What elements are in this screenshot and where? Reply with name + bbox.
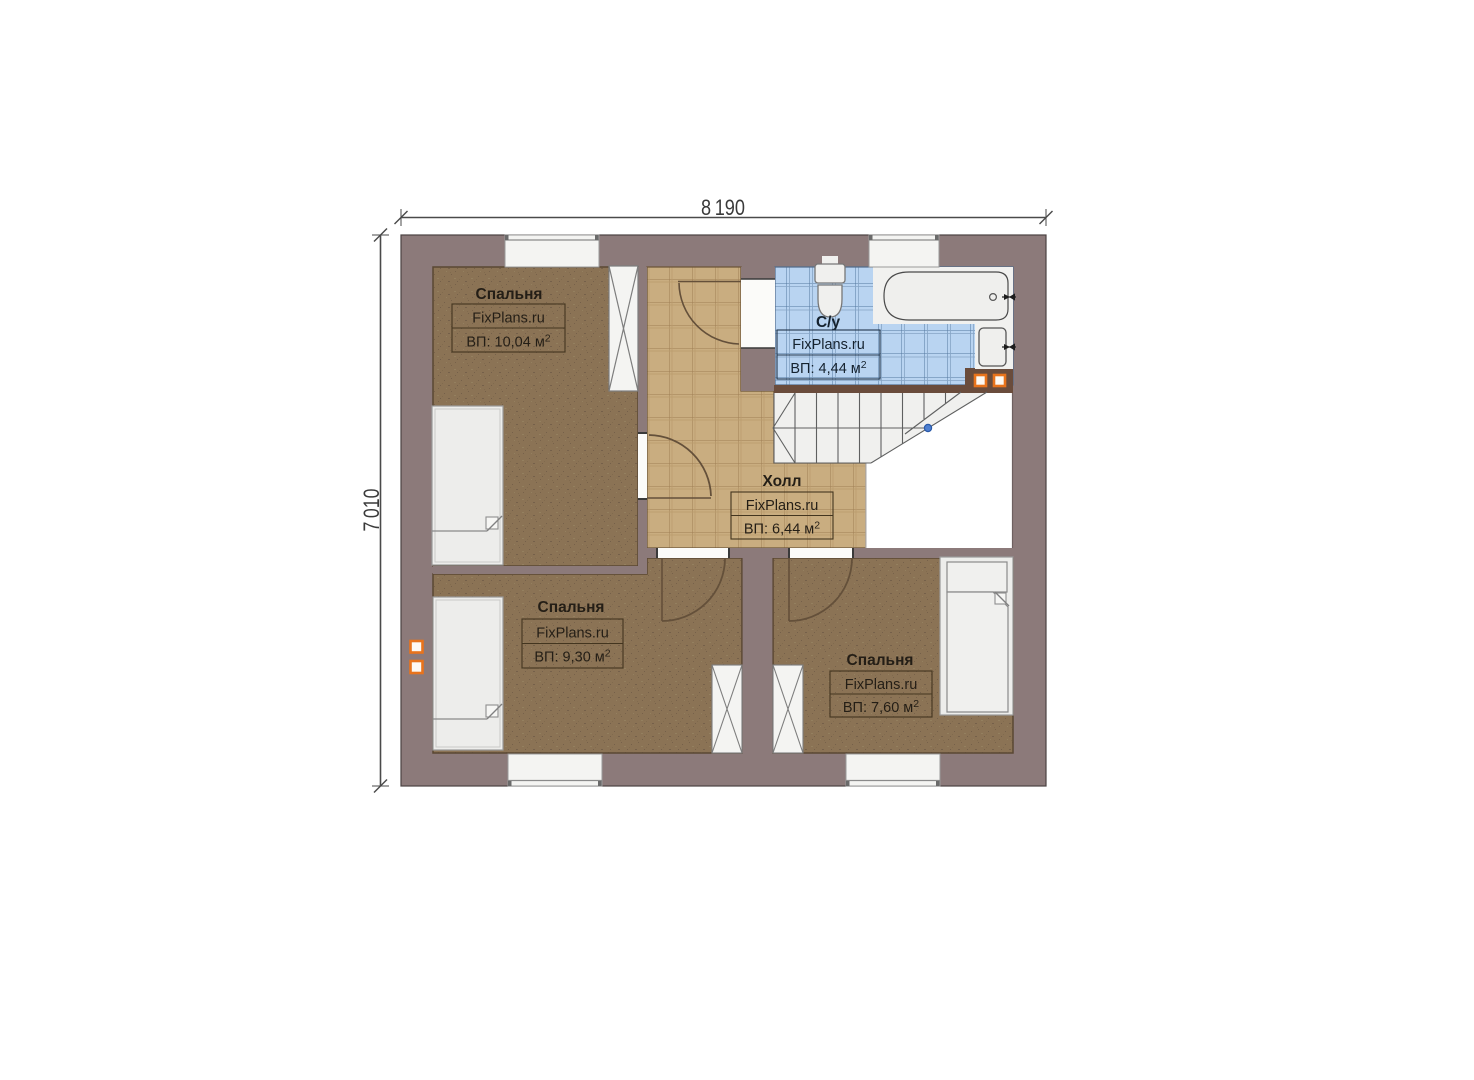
svg-text:8 190: 8 190 [701, 195, 745, 220]
svg-text:ВП: 4,44 м2: ВП: 4,44 м2 [790, 359, 866, 377]
svg-text:FixPlans.ru: FixPlans.ru [845, 677, 918, 693]
svg-text:ВП: 6,44 м2: ВП: 6,44 м2 [744, 520, 820, 538]
svg-text:ВП: 9,30 м2: ВП: 9,30 м2 [534, 648, 610, 666]
svg-text:FixPlans.ru: FixPlans.ru [746, 498, 819, 514]
svg-text:FixPlans.ru: FixPlans.ru [792, 337, 865, 353]
svg-text:ВП: 7,60 м2: ВП: 7,60 м2 [843, 698, 919, 716]
svg-text:Спальня: Спальня [476, 286, 543, 303]
svg-text:Спальня: Спальня [538, 599, 605, 616]
svg-text:FixPlans.ru: FixPlans.ru [536, 626, 609, 642]
svg-text:Холл: Холл [763, 473, 802, 490]
svg-text:ВП: 10,04 м2: ВП: 10,04 м2 [466, 333, 550, 351]
svg-text:7 010: 7 010 [359, 489, 384, 532]
svg-text:С/у: С/у [816, 314, 841, 331]
svg-text:FixPlans.ru: FixPlans.ru [472, 311, 545, 327]
svg-text:Спальня: Спальня [847, 652, 914, 669]
